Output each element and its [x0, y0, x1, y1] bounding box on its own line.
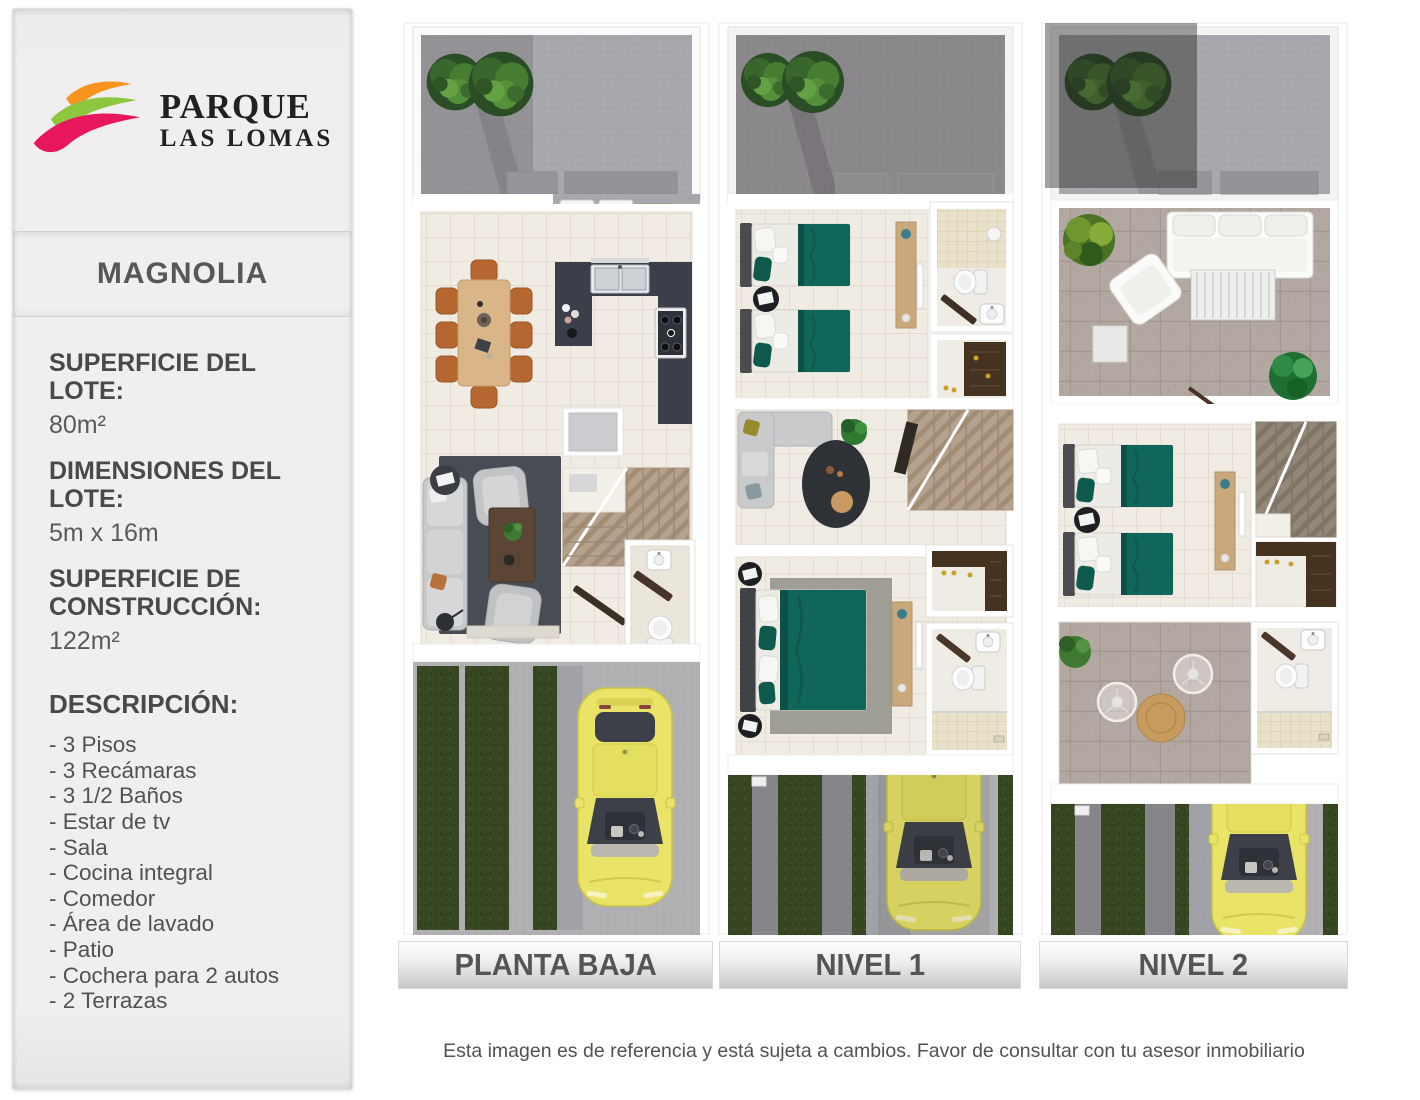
- info-sidebar: PARQUE LAS LOMAS MAGNOLIA SUPERFICIE DEL…: [12, 8, 353, 1090]
- description-item: - Patio: [49, 937, 326, 963]
- plan-label-text: PLANTA BAJA: [454, 947, 656, 983]
- plan-label-text: NIVEL 1: [815, 947, 925, 983]
- wave-pink: [33, 113, 139, 152]
- closet-master: [926, 545, 1013, 617]
- brand-name-line1: PARQUE: [160, 89, 334, 124]
- tv-room: [736, 410, 1013, 545]
- sink: [647, 550, 671, 570]
- wire-chair: [1174, 655, 1212, 693]
- tv-console: [467, 626, 559, 638]
- floor-plan-nivel-1: [718, 22, 1023, 935]
- sink: [1301, 630, 1325, 650]
- bathroom-master: [926, 623, 1013, 755]
- specs-section: SUPERFICIE DEL LOTE: 80m² DIMENSIONES DE…: [13, 317, 352, 656]
- roof-terrace: [1051, 200, 1338, 414]
- outdoor-sofa: [1167, 212, 1313, 278]
- closet: [1256, 542, 1336, 607]
- description-item: - 3 Pisos: [49, 732, 326, 758]
- cube-stool: [1093, 326, 1127, 362]
- bathroom-upper: [930, 202, 1013, 332]
- tree-icon: [782, 51, 844, 113]
- description-item: - Cocina integral: [49, 860, 326, 886]
- headboard: [740, 588, 756, 712]
- rug: [802, 440, 870, 528]
- terrace-back: [728, 27, 1013, 202]
- twin-bed: [1063, 532, 1173, 596]
- toilet: [954, 270, 987, 294]
- driveway: [413, 662, 700, 935]
- description-item: - Cochera para 2 autos: [49, 963, 326, 989]
- outdoor-coffee-table: [1191, 270, 1275, 320]
- description-item: - Estar de tv: [49, 809, 326, 835]
- plan-label-nivel-2: NIVEL 2: [1039, 941, 1348, 989]
- grass-strip: [465, 666, 509, 930]
- spec-lot-surface-label: SUPERFICIE DEL LOTE:: [49, 349, 326, 405]
- description-section: DESCRIPCIÓN: - 3 Pisos - 3 Recámaras - 3…: [13, 673, 352, 1014]
- patio: [413, 27, 700, 202]
- description-item: - 2 Terrazas: [49, 988, 326, 1014]
- flyer-page: PARQUE LAS LOMAS MAGNOLIA SUPERFICIE DEL…: [0, 0, 1420, 1100]
- spec-construction-value: 122m²: [49, 627, 326, 656]
- description-item: - Área de lavado: [49, 911, 326, 937]
- floor-plan-nivel-2: [1041, 22, 1348, 935]
- spec-lot-surface-value: 80m²: [49, 411, 326, 440]
- stairs: [894, 410, 1013, 510]
- dining-table: [458, 280, 510, 386]
- brand-logo: PARQUE LAS LOMAS: [13, 9, 352, 231]
- mirror: [1239, 492, 1245, 536]
- sink: [980, 304, 1004, 324]
- description-item: - Comedor: [49, 886, 326, 912]
- closet-upper: [930, 334, 1013, 404]
- mirror: [917, 264, 923, 308]
- stairs: [1256, 422, 1336, 537]
- floor-plan-planta-baja: [403, 22, 710, 935]
- brand-name: PARQUE LAS LOMAS: [160, 89, 334, 151]
- brand-waves-icon: [32, 70, 152, 170]
- grass-strip: [533, 666, 557, 930]
- plan-label-text: NIVEL 2: [1139, 947, 1249, 983]
- grass-strip: [417, 666, 459, 930]
- round-table: [1137, 694, 1185, 742]
- plan-label-nivel-1: NIVEL 1: [719, 941, 1021, 989]
- description-item: - 3 Recámaras: [49, 758, 326, 784]
- wire-chair: [1098, 683, 1136, 721]
- brand-name-line2: LAS LOMAS: [160, 126, 334, 151]
- living-room: [423, 456, 561, 645]
- shade-overlay: [1045, 23, 1197, 188]
- disclaimer-text: Esta imagen es de referencia y está suje…: [400, 1040, 1348, 1063]
- twin-bed: [1063, 444, 1173, 508]
- storage-room: [563, 408, 623, 456]
- sink: [976, 632, 1000, 652]
- spec-lot-dimensions-value: 5m x 16m: [49, 519, 326, 548]
- terrace-back: [1045, 23, 1338, 202]
- spec-construction-label: SUPERFICIE DE CONSTRUCCIÓN:: [49, 565, 326, 621]
- bathroom: [1251, 622, 1338, 754]
- plan-label-planta-baja: PLANTA BAJA: [398, 941, 713, 989]
- description-title: DESCRIPCIÓN:: [49, 689, 326, 720]
- terrace-front: [1059, 622, 1251, 794]
- description-item: - Sala: [49, 835, 326, 861]
- description-list: - 3 Pisos - 3 Recámaras - 3 1/2 Baños - …: [49, 732, 326, 1014]
- twin-bed: [740, 309, 850, 373]
- tree-icon: [469, 52, 534, 117]
- mirror: [916, 622, 922, 668]
- description-item: - 3 1/2 Baños: [49, 783, 326, 809]
- model-name: MAGNOLIA: [13, 231, 352, 317]
- bedroom-twin: [1051, 417, 1338, 607]
- toilet: [952, 666, 985, 690]
- twin-bed: [740, 223, 850, 287]
- spec-lot-dimensions-label: DIMENSIONES DEL LOTE:: [49, 457, 326, 513]
- coffee-table: [489, 508, 535, 582]
- toilet: [1275, 664, 1308, 688]
- car: [575, 688, 675, 906]
